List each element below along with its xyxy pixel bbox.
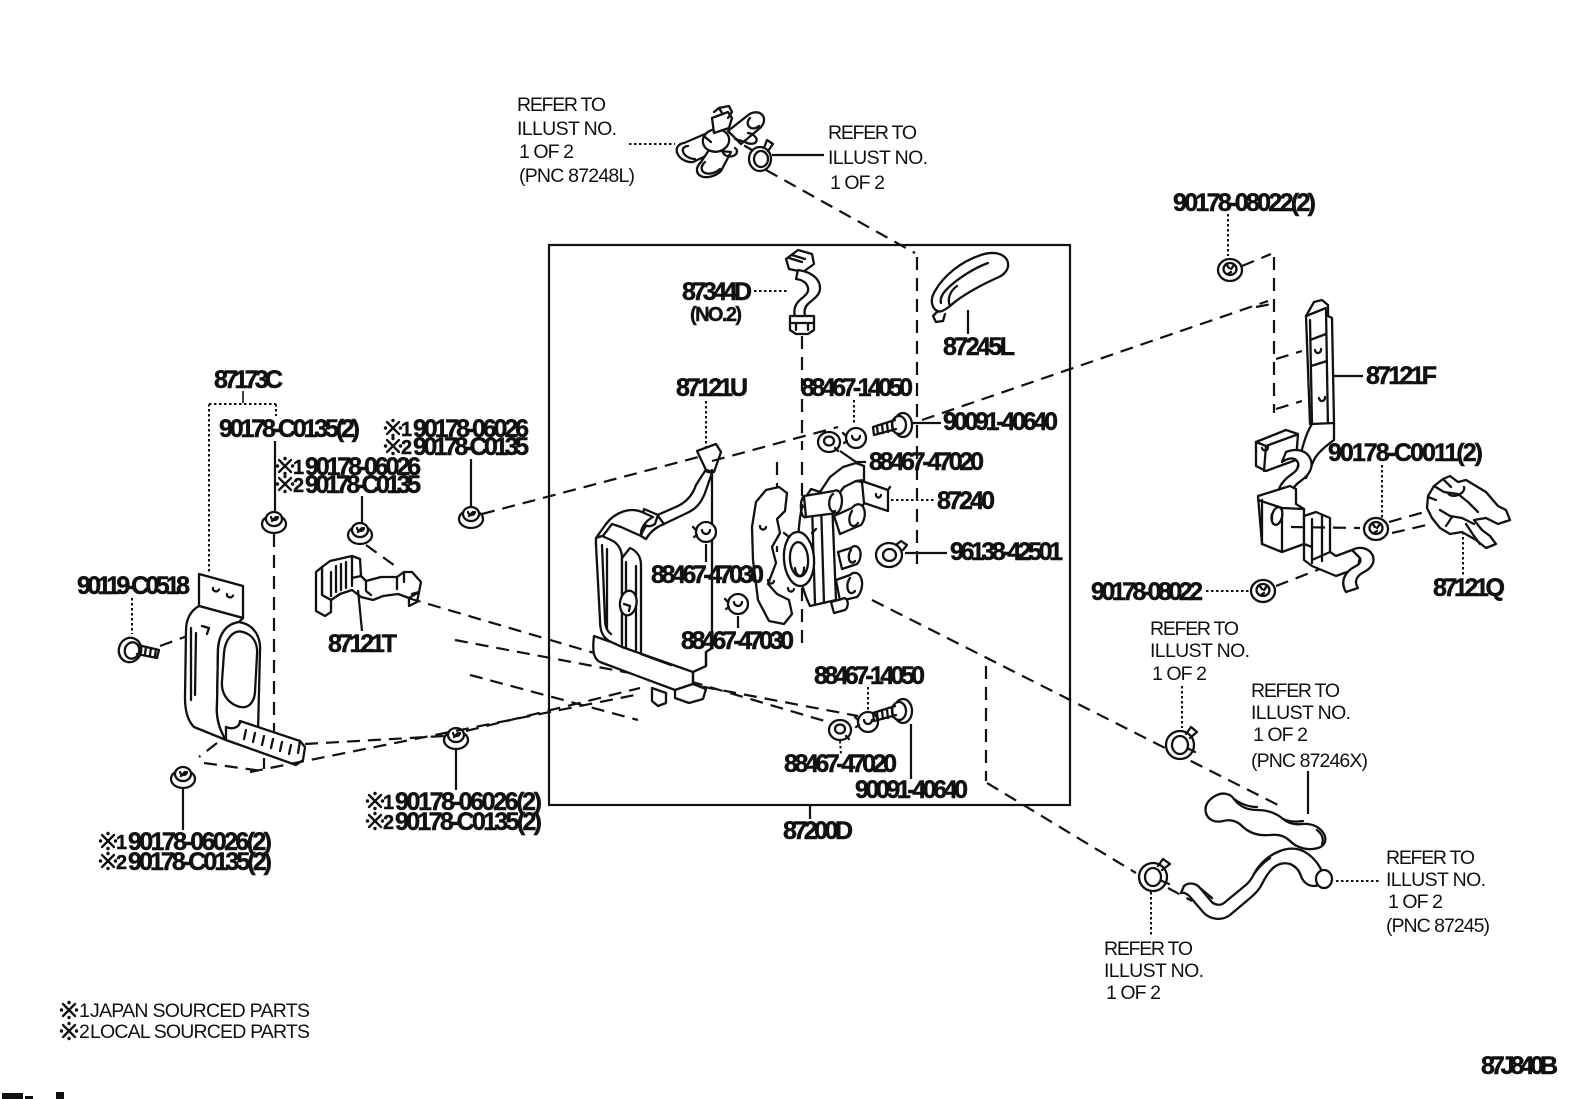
svg-text:88467-14050: 88467-14050 [801,374,913,402]
svg-text:REFER TO: REFER TO [1104,938,1193,960]
svg-text:87344D: 87344D [682,278,752,306]
svg-text:90178-C0135: 90178-C0135 [305,471,421,499]
svg-text:2: 2 [383,812,394,834]
svg-text:90091-40640: 90091-40640 [855,776,968,804]
svg-text:1 OF 2: 1 OF 2 [1152,663,1207,685]
svg-text:87240: 87240 [937,487,995,515]
svg-text:90178-C0135(2): 90178-C0135(2) [128,848,272,876]
svg-text:87173C: 87173C [214,366,283,394]
svg-text:90178-08022(2): 90178-08022(2) [1173,189,1316,217]
svg-text:2: 2 [401,437,412,459]
svg-text:88467-14050: 88467-14050 [814,662,925,690]
svg-text:87200D: 87200D [783,817,853,845]
svg-text:LOCAL SOURCED PARTS: LOCAL SOURCED PARTS [90,1021,310,1043]
svg-text:88467-47020: 88467-47020 [869,448,984,476]
svg-text:88467-47020: 88467-47020 [784,750,897,778]
svg-text:ILLUST NO.: ILLUST NO. [1251,702,1351,724]
svg-text:87J840B: 87J840B [1481,1052,1558,1080]
svg-text:87121Q: 87121Q [1433,574,1505,602]
svg-text:1: 1 [383,792,394,814]
svg-text:REFER TO: REFER TO [517,94,606,116]
svg-text:90178-C0135(2): 90178-C0135(2) [395,808,542,836]
svg-text:REFER TO: REFER TO [828,122,917,144]
svg-text:ILLUST NO.: ILLUST NO. [1150,640,1250,662]
svg-text:87121F: 87121F [1366,362,1437,390]
svg-text:REFER TO: REFER TO [1386,847,1475,869]
svg-text:87121T: 87121T [328,630,397,658]
svg-text:90178-C0011(2): 90178-C0011(2) [1328,439,1483,467]
svg-text:(NO.2): (NO.2) [690,304,742,326]
svg-text:ILLUST NO.: ILLUST NO. [517,118,617,140]
svg-text:88467-47030: 88467-47030 [681,627,794,655]
svg-text:1: 1 [79,1000,90,1022]
svg-text:ILLUST NO.: ILLUST NO. [1104,960,1204,982]
svg-text:87121U: 87121U [676,374,748,402]
svg-text:ILLUST NO.: ILLUST NO. [1386,869,1486,891]
svg-text:(PNC 87246X): (PNC 87246X) [1251,750,1368,772]
svg-text:1 OF 2: 1 OF 2 [830,172,885,194]
svg-text:88467-47030: 88467-47030 [651,561,764,589]
svg-text:87245L: 87245L [943,333,1015,361]
svg-text:2: 2 [293,475,304,497]
svg-text:1 OF 2: 1 OF 2 [1388,891,1443,913]
svg-text:90178-08022: 90178-08022 [1091,578,1203,606]
svg-text:90178-C0135(2): 90178-C0135(2) [219,415,360,443]
svg-text:(PNC 87245): (PNC 87245) [1386,915,1490,937]
svg-text:90178-C0135: 90178-C0135 [413,433,529,461]
svg-text:1 OF 2: 1 OF 2 [1106,982,1161,1004]
svg-text:90119-C0518: 90119-C0518 [77,572,190,600]
svg-text:1: 1 [116,832,127,854]
svg-text:96138-42501: 96138-42501 [950,538,1063,566]
svg-text:JAPAN SOURCED PARTS: JAPAN SOURCED PARTS [90,1000,310,1022]
svg-text:ILLUST NO.: ILLUST NO. [828,147,928,169]
svg-text:1 OF 2: 1 OF 2 [1253,724,1308,746]
svg-text:2: 2 [116,852,127,874]
svg-text:(PNC 87248L): (PNC 87248L) [519,165,635,187]
svg-text:2: 2 [79,1021,90,1043]
svg-text:90091-40640: 90091-40640 [943,408,1058,436]
svg-text:REFER TO: REFER TO [1150,618,1239,640]
svg-text:1 OF 2: 1 OF 2 [519,141,574,163]
svg-text:REFER TO: REFER TO [1251,680,1340,702]
